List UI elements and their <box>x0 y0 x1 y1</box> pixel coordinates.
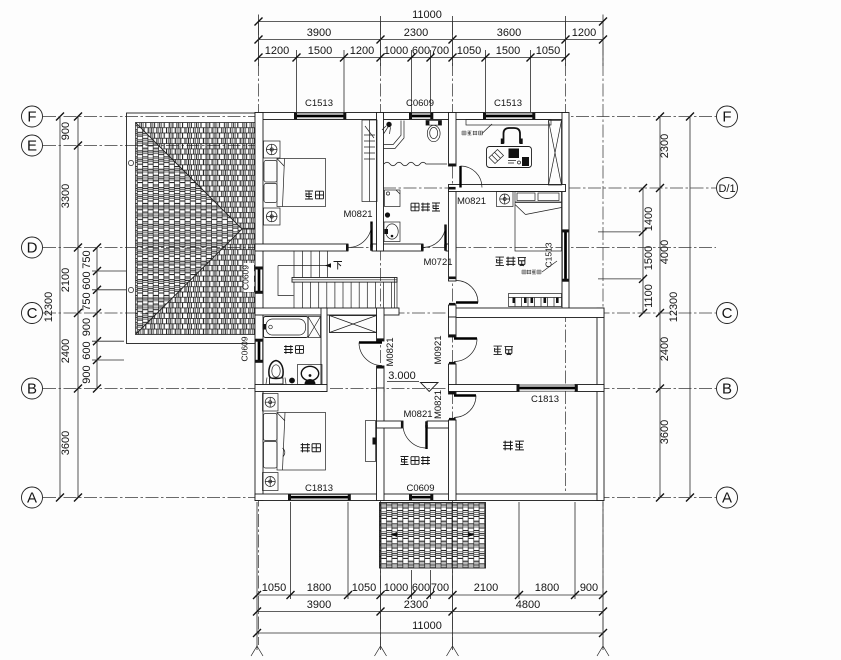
svg-text:C1513: C1513 <box>544 242 554 267</box>
svg-text:C0609: C0609 <box>407 483 435 494</box>
svg-text:A: A <box>27 490 37 507</box>
svg-text:M0821: M0821 <box>343 209 372 220</box>
svg-text:C1513: C1513 <box>305 98 333 109</box>
svg-text:2400: 2400 <box>60 339 72 363</box>
svg-text:2300: 2300 <box>404 27 428 39</box>
svg-text:700: 700 <box>431 582 449 594</box>
svg-text:700: 700 <box>431 45 449 57</box>
svg-text:750: 750 <box>81 292 93 310</box>
svg-text:C0609: C0609 <box>241 265 251 290</box>
svg-text:1200: 1200 <box>350 45 374 57</box>
svg-text:1050: 1050 <box>536 45 560 57</box>
svg-text:C: C <box>27 305 38 322</box>
svg-text:1050: 1050 <box>352 582 376 594</box>
svg-text:1000: 1000 <box>384 45 408 57</box>
svg-text:2100: 2100 <box>60 268 72 292</box>
svg-text:3600: 3600 <box>659 420 671 444</box>
svg-text:1100: 1100 <box>643 284 655 308</box>
svg-text:M0821: M0821 <box>433 390 444 419</box>
svg-text:M0821: M0821 <box>385 337 396 366</box>
svg-text:E: E <box>27 138 37 155</box>
svg-text:11000: 11000 <box>412 620 442 632</box>
svg-text:4000: 4000 <box>659 240 671 264</box>
svg-text:4800: 4800 <box>516 599 540 611</box>
svg-text:2300: 2300 <box>404 599 428 611</box>
svg-text:600: 600 <box>412 45 430 57</box>
svg-text:12300: 12300 <box>668 292 680 323</box>
svg-text:600: 600 <box>81 271 93 289</box>
svg-text:3900: 3900 <box>307 599 331 611</box>
svg-text:C1813: C1813 <box>305 483 333 494</box>
svg-text:C1813: C1813 <box>531 394 559 405</box>
svg-text:C0609: C0609 <box>240 336 250 361</box>
svg-text:900: 900 <box>81 318 93 336</box>
svg-text:3600: 3600 <box>60 431 72 455</box>
svg-text:3300: 3300 <box>60 184 72 208</box>
svg-text:12300: 12300 <box>43 292 55 323</box>
svg-text:900: 900 <box>81 365 93 383</box>
svg-text:D/1: D/1 <box>718 183 735 195</box>
svg-text:A: A <box>722 490 732 507</box>
svg-text:1500: 1500 <box>643 246 655 270</box>
svg-text:3.000: 3.000 <box>388 370 416 382</box>
svg-text:C1513: C1513 <box>494 98 522 109</box>
svg-text:600: 600 <box>412 582 430 594</box>
svg-text:2300: 2300 <box>659 134 671 158</box>
svg-text:B: B <box>722 381 732 398</box>
svg-text:1050: 1050 <box>457 45 481 57</box>
svg-text:2400: 2400 <box>659 337 671 361</box>
svg-text:2100: 2100 <box>474 582 498 594</box>
svg-text:C: C <box>722 305 733 322</box>
svg-text:M0821: M0821 <box>403 409 432 420</box>
svg-text:B: B <box>27 381 37 398</box>
svg-text:1500: 1500 <box>496 45 520 57</box>
svg-text:F: F <box>27 109 36 126</box>
svg-text:3600: 3600 <box>497 27 521 39</box>
svg-text:3900: 3900 <box>307 27 331 39</box>
svg-text:1500: 1500 <box>308 45 332 57</box>
svg-text:C0609: C0609 <box>406 98 434 109</box>
svg-text:1800: 1800 <box>307 582 331 594</box>
svg-text:1400: 1400 <box>643 207 655 231</box>
svg-text:1050: 1050 <box>262 582 286 594</box>
svg-text:M0721: M0721 <box>423 257 452 268</box>
svg-text:1200: 1200 <box>572 27 596 39</box>
svg-text:1200: 1200 <box>265 45 289 57</box>
svg-text:1000: 1000 <box>384 582 408 594</box>
svg-text:1800: 1800 <box>535 582 559 594</box>
svg-text:900: 900 <box>580 582 598 594</box>
svg-text:600: 600 <box>81 341 93 359</box>
svg-text:M0921: M0921 <box>433 335 444 364</box>
svg-text:900: 900 <box>60 122 72 140</box>
svg-text:D: D <box>27 240 38 257</box>
svg-text:F: F <box>722 109 731 126</box>
svg-text:M0821: M0821 <box>457 196 486 207</box>
svg-text:11000: 11000 <box>412 9 442 21</box>
svg-text:750: 750 <box>81 250 93 268</box>
